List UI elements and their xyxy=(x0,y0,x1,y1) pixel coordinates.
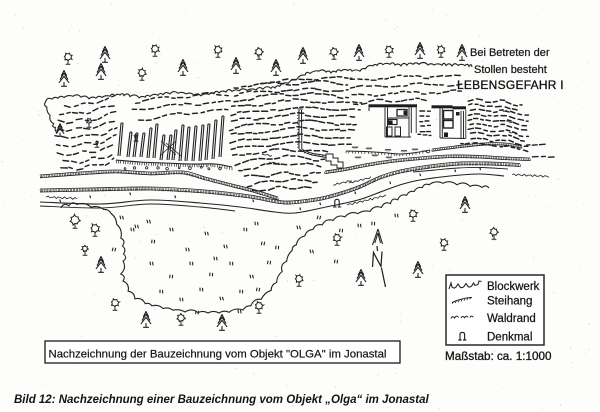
svg-text:Denkmal: Denkmal xyxy=(487,332,532,344)
svg-text:Stollen besteht: Stollen besteht xyxy=(474,64,547,76)
svg-text:Waldrand: Waldrand xyxy=(487,313,536,325)
svg-text:Nachzeichnung der Bauzeichnung: Nachzeichnung der Bauzeichnung vom Objek… xyxy=(49,348,387,360)
svg-text:Blockwerk: Blockwerk xyxy=(487,281,540,293)
svg-text:Bild 12: Nachzeichnung einer B: Bild 12: Nachzeichnung einer Bauzeichnun… xyxy=(14,394,430,406)
svg-text:Maßstab: ca. 1:1000: Maßstab: ca. 1:1000 xyxy=(445,350,552,363)
svg-text:LEBENSGEFAHR I: LEBENSGEFAHR I xyxy=(457,78,564,92)
svg-text:Bei Betreten der: Bei Betreten der xyxy=(470,47,550,59)
svg-text:Steihang: Steihang xyxy=(487,296,532,308)
